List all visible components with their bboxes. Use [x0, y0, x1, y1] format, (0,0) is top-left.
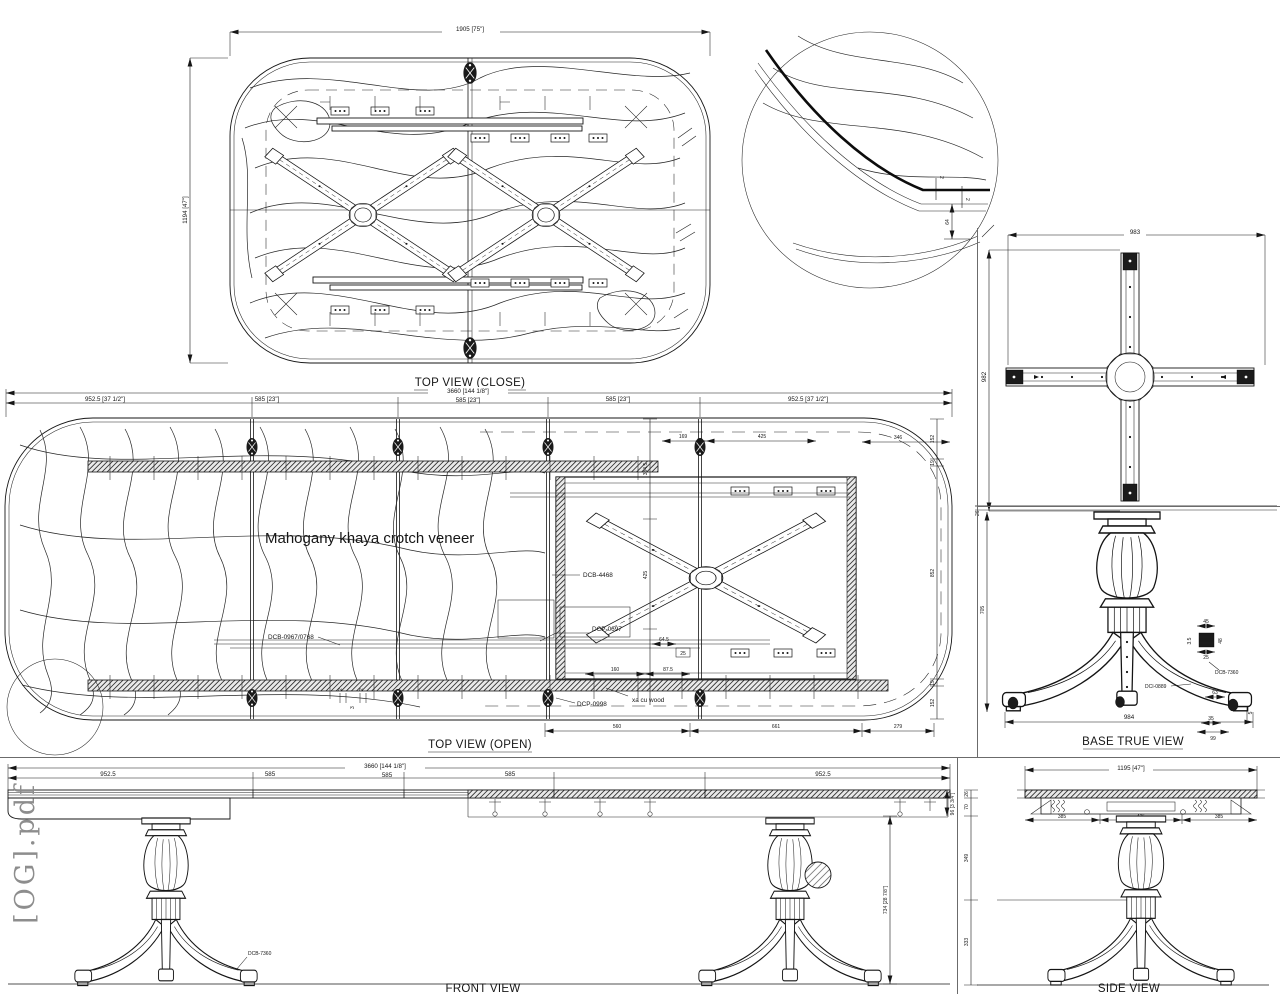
base-caster-detail: 45 3.5 48 25 DCB-7360 DCI-0889 63 35 99 …	[1145, 619, 1254, 742]
open-dim-band: 3660 [144 1/8"] 952.5 [37 1/2"] 585 [23"…	[6, 387, 952, 417]
detail-grain	[763, 36, 986, 180]
side-spring-glyphs	[1052, 800, 1207, 814]
base-det-48: 48	[1218, 638, 1224, 644]
front-seg1: 952.5	[100, 771, 116, 778]
side-title: SIDE VIEW	[1098, 983, 1160, 994]
base-dim-26: 26	[975, 510, 981, 516]
base-pedestal	[1003, 512, 1252, 711]
open-seg5: 952.5 [37 1/2"]	[788, 396, 828, 403]
cross-body	[1006, 253, 1254, 501]
veneer-note: Mahogany khaya crotch veneer	[265, 530, 474, 547]
open-dim-3: 3	[350, 706, 356, 709]
front-seg4: 585	[505, 771, 516, 778]
base-dim-35b: 35	[1208, 716, 1214, 722]
open-dim-425-left: 425	[643, 571, 649, 580]
open-dim-852: 852	[930, 569, 936, 578]
label-xa-cu-wood: xa cu wood	[632, 697, 665, 704]
open-dim-152-tr: 152	[930, 435, 936, 444]
open-dim-425-top: 425	[758, 434, 767, 440]
open-dim-645: 64.5	[659, 637, 669, 643]
base-det-25: 25	[1203, 655, 1209, 661]
label-dcb4468: DCB-4468	[583, 572, 613, 579]
front-view-drawing: 3660 [144 1/8"] 952.5 585 585 585 952.5	[0, 758, 957, 994]
open-dim-25: 25	[680, 651, 686, 657]
tvc-dim-height: 1194 [47"]	[182, 196, 189, 224]
base-title: BASE TRUE VIEW	[1082, 736, 1184, 748]
side-pedestal	[1048, 816, 1234, 985]
open-seg2: 585 [23"]	[255, 396, 280, 403]
side-seg3: 385	[1215, 814, 1224, 820]
front-dim-apron: 96 [3 3/4"]	[950, 792, 956, 815]
open-bottom-dims: 560 661 279	[545, 723, 934, 737]
watermark-filename: [OG].pdf	[10, 782, 54, 920]
label-dcb0967: DCB-0967/0768	[268, 634, 314, 641]
detail-dimensions: 2 2 64	[936, 176, 970, 239]
open-seg3: 585 [23"]	[456, 397, 481, 404]
side-dim-overall: 1195 [47"]	[1117, 765, 1145, 772]
open-dim-384: 384.5	[643, 463, 649, 476]
open-seg4: 585 [23"]	[606, 396, 631, 403]
front-seg5: 952.5	[815, 771, 831, 778]
open-dim-overall: 3660 [144 1/8"]	[447, 388, 489, 395]
base-dim-705: 705	[980, 606, 986, 615]
divider-vertical-bottom	[957, 757, 958, 994]
side-dim-333: 333	[964, 938, 970, 947]
open-title: TOP VIEW (OPEN)	[428, 739, 532, 751]
front-pedestal-left	[75, 818, 257, 986]
open-dim-152-br: 152	[930, 699, 936, 708]
front-tabletop	[8, 790, 950, 819]
cross-spider-view: 983 982	[980, 225, 1280, 515]
front-dim-band: 3660 [144 1/8"] 952.5 585 585 585 952.5	[8, 762, 950, 790]
open-dim-169: 169	[679, 434, 688, 440]
base-dim-984: 984	[1124, 714, 1135, 721]
label-dcp0998: DCP-0998	[577, 701, 607, 708]
top-view-close-drawing: 1905 [75"] 1194 [47"]	[180, 18, 745, 396]
divider-horizontal-right	[977, 506, 1280, 507]
edge-detail-circle: 2 2 64	[738, 8, 1008, 308]
front-dim-overall: 3660 [144 1/8"]	[364, 763, 406, 770]
front-title: FRONT VIEW	[446, 983, 521, 994]
front-dim-height: 734 [28 7/8"]	[883, 885, 889, 914]
front-right-dims: 96 [3 3/4"] 734 [28 7/8"]	[883, 790, 956, 984]
detail-edge-profile	[755, 50, 990, 263]
base-det-35: 3.5	[1187, 637, 1193, 644]
base-det-45: 45	[1203, 619, 1209, 625]
base-title-group: BASE TRUE VIEW	[1082, 736, 1184, 749]
open-title-group: TOP VIEW (OPEN)	[428, 739, 532, 752]
open-dim-19-tr: 19	[930, 460, 936, 466]
open-dim-19-br: 19	[930, 680, 936, 686]
tvc-tabletop	[230, 58, 710, 363]
open-dim-2a: 2	[338, 688, 344, 691]
side-seg1: 385	[1058, 814, 1067, 820]
front-section-marker	[805, 862, 831, 888]
drawing-sheet: 1905 [75"] 1194 [47"]	[0, 0, 1280, 994]
open-dim-160: 160	[611, 667, 620, 673]
detail-dim-a: 2	[938, 176, 944, 179]
side-dim-band: 1195 [47"]	[1025, 764, 1257, 790]
detail-dim-drop: 64	[945, 219, 951, 225]
front-pedestal-right	[699, 818, 881, 986]
divider-vertical-right	[977, 228, 978, 757]
label-dcp0697: DCP-0697	[592, 626, 622, 633]
base-label-dci0889: DCI-0889	[1145, 684, 1167, 690]
divider-horizontal-mid	[0, 757, 1280, 758]
front-part-label: DCB-7360	[236, 951, 272, 970]
open-dim-875: 87.5	[663, 667, 673, 673]
base-label-dcb7360: DCB-7360	[1215, 670, 1239, 676]
tvc-dim-width: 1905 [75"]	[456, 26, 484, 33]
open-seg1: 952.5 [37 1/2"]	[85, 396, 125, 403]
side-dim-70: 70	[964, 804, 970, 810]
top-view-open-drawing: 3660 [144 1/8"] 952.5 [37 1/2"] 585 [23"…	[0, 385, 965, 759]
open-dim-661: 661	[772, 724, 781, 730]
open-dim-2b: 2	[359, 688, 365, 691]
open-dim-279: 279	[894, 724, 903, 730]
cross-dim-width: 983	[1130, 229, 1141, 236]
cross-dim-height: 982	[981, 371, 988, 382]
base-dim-99: 99	[1210, 736, 1216, 742]
front-seg3: 585	[382, 772, 393, 779]
side-dim-26: 26	[964, 791, 970, 797]
base-true-view-drawing: 26 705 45 3.5 48 25 DCB-7360 DCI-0889 63	[975, 500, 1280, 758]
front-underside-parts	[489, 799, 936, 816]
base-dim-63: 63	[1212, 690, 1218, 696]
front-seg2: 585	[265, 771, 276, 778]
open-dim-346: 346	[894, 435, 903, 441]
open-dim-560: 560	[613, 724, 622, 730]
watermark-text: [OG].pdf	[10, 782, 41, 924]
front-label-dcb7360: DCB-7360	[248, 951, 272, 957]
side-view-drawing: 1195 [47"] 385 425 385 26 70	[957, 758, 1280, 994]
detail-dim-b: 2	[964, 198, 970, 201]
side-dim-349: 349	[964, 854, 970, 863]
